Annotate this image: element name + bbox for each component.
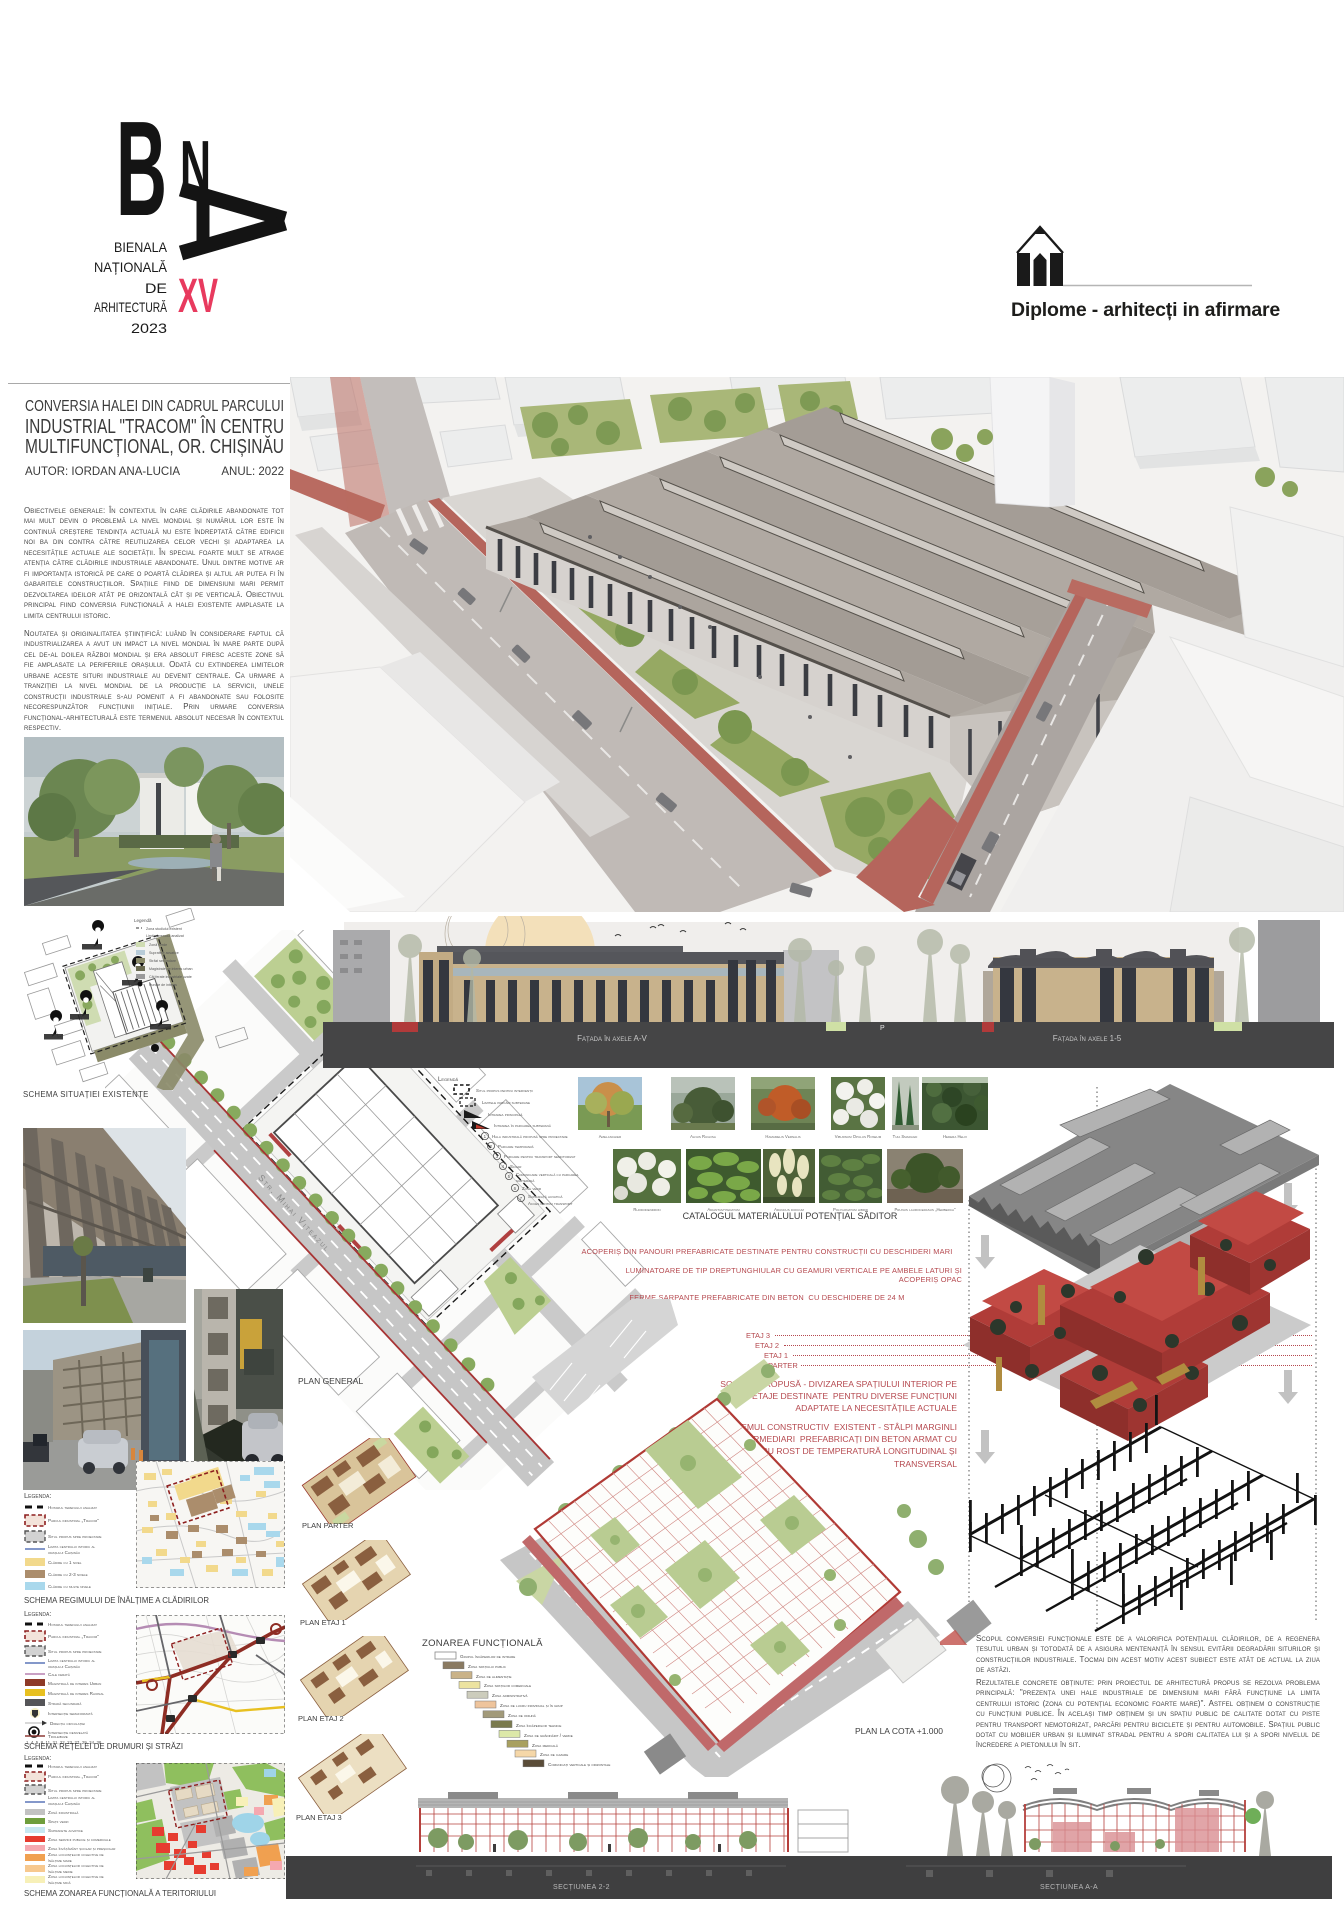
svg-text:Suprafață acvatică: Suprafață acvatică [528, 1194, 563, 1199]
svg-text:Limita centrului istoric al: Limita centrului istoric al [48, 1658, 95, 1663]
svg-text:Zona locuințelor colective de: Zona locuințelor colective de [48, 1874, 104, 1879]
svg-text:Zona locuințelor colective de: Zona locuințelor colective de [48, 1852, 104, 1857]
svg-text:Suprafețe acvatice: Suprafețe acvatice [149, 951, 179, 955]
svg-text:4: 4 [502, 1164, 505, 1169]
svg-text:Comunicare verticală cu parcar: Comunicare verticală cu parcarea [516, 1172, 578, 1177]
svg-text:MULTIFUNCȚIONAL, OR. CHIȘINĂU: MULTIFUNCȚIONAL, OR. CHIȘINĂU [25, 435, 284, 458]
svg-text:Cale ferată: Cale ferată [48, 1672, 70, 1677]
svg-text:Troleibuze: Troleibuze [48, 1734, 68, 1739]
svg-text:Legenda:: Legenda: [24, 1491, 51, 1500]
svg-text:Zone verzi: Zone verzi [522, 1186, 541, 1191]
svg-text:INDUSTRIAL "TRACOM" ÎN CENTRU: INDUSTRIAL "TRACOM" ÎN CENTRU [25, 415, 284, 438]
svg-text:DE: DE [145, 280, 167, 296]
svg-text:Direcția circulației: Direcția circulației [50, 1721, 85, 1726]
svg-text:Zonă industrială: Zonă industrială [48, 1810, 78, 1815]
svg-text:orașului Chișinău: orașului Chișinău [48, 1801, 80, 1806]
svg-text:Fațada în axele A-V: Fațada în axele A-V [577, 1034, 647, 1043]
svg-text:înălțime mică: înălțime mică [47, 1880, 71, 1885]
svg-text:Situl propus spre proiectare: Situl propus spre proiectare [48, 1534, 102, 1539]
svg-text:BIENALA: BIENALA [114, 239, 168, 255]
svg-text:CONVERSIA HALEI DIN CADRUL PAR: CONVERSIA HALEI DIN CADRUL PARCULUI [25, 398, 284, 415]
svg-text:orașului Chișinău: orașului Chișinău [48, 1550, 80, 1555]
svg-text:Acces pentru transport: Acces pentru transport [528, 1201, 573, 1206]
svg-text:Clădire cu 1 nivel: Clădire cu 1 nivel [48, 1560, 82, 1565]
svg-text:2: 2 [490, 1144, 493, 1149]
svg-text:Limita terenului analizat: Limita terenului analizat [146, 934, 184, 938]
svg-text:Magistrală de interes Raional: Magistrală de interes Raional [48, 1691, 104, 1696]
svg-text:Parcul industrial „Tracom": Parcul industrial „Tracom" [48, 1774, 99, 1779]
svg-text:Hotarul terenului analizat: Hotarul terenului analizat [48, 1505, 97, 1510]
svg-text:NAȚIONALĂ: NAȚIONALĂ [94, 259, 168, 275]
svg-text:Hotarul terenului analizat: Hotarul terenului analizat [48, 1764, 97, 1769]
svg-text:Situl propus spre proiectare: Situl propus spre proiectare [48, 1649, 102, 1654]
svg-text:Hotarul terenului analizat: Hotarul terenului analizat [48, 1622, 97, 1627]
svg-text:Legenda:: Legenda: [24, 1753, 51, 1762]
svg-text:Intrarea principală: Intrarea principală [488, 1112, 522, 1117]
svg-text:Limita centrului istoric al: Limita centrului istoric al [48, 1544, 95, 1549]
svg-text:Căi ferate industriale uzate: Căi ferate industriale uzate [149, 975, 192, 979]
svg-text:Zona locuințelor colective de: Zona locuințelor colective de [48, 1863, 104, 1868]
svg-text:5: 5 [508, 1174, 511, 1179]
svg-text:Fațada în axele 1-5: Fațada în axele 1-5 [1053, 1034, 1122, 1043]
svg-text:Clădire cu 2-3 nivele: Clădire cu 2-3 nivele [48, 1572, 88, 1577]
svg-text:2023: 2023 [131, 320, 167, 336]
svg-text:AUTOR: IORDAN ANA-LUCIA: AUTOR: IORDAN ANA-LUCIA [25, 466, 180, 478]
svg-text:Puncte de interes: Puncte de interes [149, 983, 177, 987]
svg-text:subterană: subterană [516, 1178, 534, 1183]
svg-text:Situl propus pentru intervenți: Situl propus pentru intervenții [476, 1088, 533, 1093]
svg-text:Stradă secundară: Stradă secundară [48, 1701, 81, 1706]
svg-text:orașului Chișinău: orașului Chișinău [48, 1664, 80, 1669]
svg-text:1: 1 [484, 1134, 487, 1139]
svg-text:ANUL: 2022: ANUL: 2022 [221, 466, 284, 478]
svg-text:Scuar: Scuar [510, 1164, 522, 1169]
svg-text:P: P [880, 1025, 885, 1032]
svg-text:Legendă: Legendă [438, 1077, 459, 1083]
svg-text:Suprafete acvatice: Suprafete acvatice [48, 1828, 83, 1833]
svg-text:Zonă verde: Zonă verde [149, 943, 167, 947]
svg-text:Parcare pentru transport nemot: Parcare pentru transport nemotorizat [504, 1154, 576, 1159]
svg-text:Spații verzi: Spații verzi [48, 1819, 69, 1824]
svg-text:Hala industrială propusă spre: Hala industrială propusă spre proiectare [492, 1134, 568, 1139]
svg-text:Parcul industrial „Tracom": Parcul industrial „Tracom" [48, 1634, 99, 1639]
svg-text:Zona studiului existent: Zona studiului existent [146, 927, 182, 931]
svg-text:Limitele parcări subterane: Limitele parcări subterane [482, 1100, 530, 1105]
svg-text:Magistrală de interes Urban: Magistrală de interes Urban [48, 1681, 101, 1686]
svg-text:Legenda:: Legenda: [24, 1609, 51, 1618]
svg-text:Limita centrului istoric al: Limita centrului istoric al [48, 1795, 95, 1800]
svg-text:6: 6 [514, 1186, 517, 1191]
svg-text:Parcul industrial „Tracom": Parcul industrial „Tracom" [48, 1518, 99, 1523]
svg-text:Situl propus spre proiectare: Situl propus spre proiectare [48, 1788, 102, 1793]
svg-text:Zona învățământ școlar și preș: Zona învățământ școlar și preșcolar [48, 1846, 116, 1851]
svg-text:Intrarea în parcarea subterană: Intrarea în parcarea subterană [494, 1123, 551, 1128]
svg-text:Legendă: Legendă [134, 918, 152, 923]
svg-text:Intersecție semaforizată: Intersecție semaforizată [48, 1711, 93, 1716]
svg-text:XV: XV [178, 270, 218, 323]
svg-text:7: 7 [520, 1196, 523, 1201]
svg-text:3: 3 [496, 1154, 499, 1159]
svg-text:Magistrale de interes urban: Magistrale de interes urban [149, 967, 193, 971]
svg-text:Zona servicii publice și comer: Zona servicii publice și comerciale [48, 1837, 111, 1842]
svg-text:Străzi secundare: Străzi secundare [149, 959, 176, 963]
svg-text:Clădire cu multe nivele: Clădire cu multe nivele [48, 1584, 91, 1589]
svg-text:Parcare temporară: Parcare temporară [498, 1144, 534, 1149]
svg-text:B: B [116, 97, 167, 244]
svg-text:ARHITECTURĂ: ARHITECTURĂ [94, 299, 167, 315]
